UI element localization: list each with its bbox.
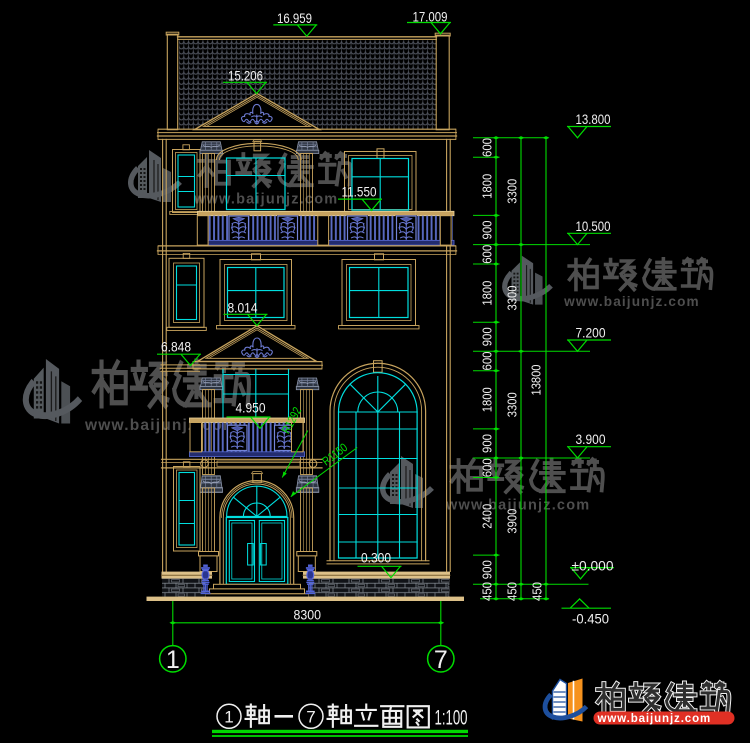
svg-text:6.848: 6.848: [161, 340, 191, 355]
svg-text:600: 600: [480, 458, 495, 477]
svg-text:450: 450: [480, 582, 495, 601]
svg-text:3900: 3900: [505, 509, 520, 534]
svg-text:11.550: 11.550: [342, 185, 377, 200]
svg-text:7: 7: [306, 708, 315, 727]
svg-text:3300: 3300: [505, 392, 520, 417]
svg-text:600: 600: [480, 245, 495, 264]
svg-text:0.300: 0.300: [361, 551, 391, 566]
svg-text:±0.000: ±0.000: [572, 558, 614, 573]
svg-text:2400: 2400: [480, 504, 495, 529]
svg-text:17.009: 17.009: [413, 10, 448, 25]
svg-text:www.baijunjz.com: www.baijunjz.com: [597, 713, 712, 725]
svg-text:-0.450: -0.450: [572, 612, 609, 627]
svg-text:3300: 3300: [505, 179, 520, 204]
svg-text:900: 900: [480, 221, 495, 240]
svg-text:8300: 8300: [294, 608, 322, 623]
svg-text:3300: 3300: [505, 286, 520, 311]
svg-text:900: 900: [480, 327, 495, 346]
svg-text:13800: 13800: [529, 365, 544, 396]
svg-text:13.800: 13.800: [576, 112, 611, 127]
svg-text:450: 450: [505, 582, 520, 601]
svg-text:4.950: 4.950: [236, 401, 266, 416]
svg-text:1: 1: [224, 708, 233, 727]
svg-text:600: 600: [480, 352, 495, 371]
svg-text:1:100: 1:100: [435, 707, 468, 730]
svg-text:15.206: 15.206: [228, 69, 263, 84]
svg-text:8.014: 8.014: [228, 301, 258, 316]
svg-text:7.200: 7.200: [576, 326, 606, 341]
svg-text:10.500: 10.500: [576, 219, 611, 234]
svg-text:7: 7: [434, 646, 448, 674]
svg-text:16.959: 16.959: [277, 11, 312, 26]
svg-text:450: 450: [530, 582, 545, 601]
svg-text:1800: 1800: [480, 387, 495, 412]
svg-text:600: 600: [480, 138, 495, 157]
svg-text:1800: 1800: [480, 281, 495, 306]
svg-text:900: 900: [480, 434, 495, 453]
svg-text:900: 900: [480, 560, 495, 579]
svg-text:1: 1: [166, 646, 180, 674]
svg-text:3.900: 3.900: [576, 432, 606, 447]
svg-text:1800: 1800: [480, 174, 495, 199]
